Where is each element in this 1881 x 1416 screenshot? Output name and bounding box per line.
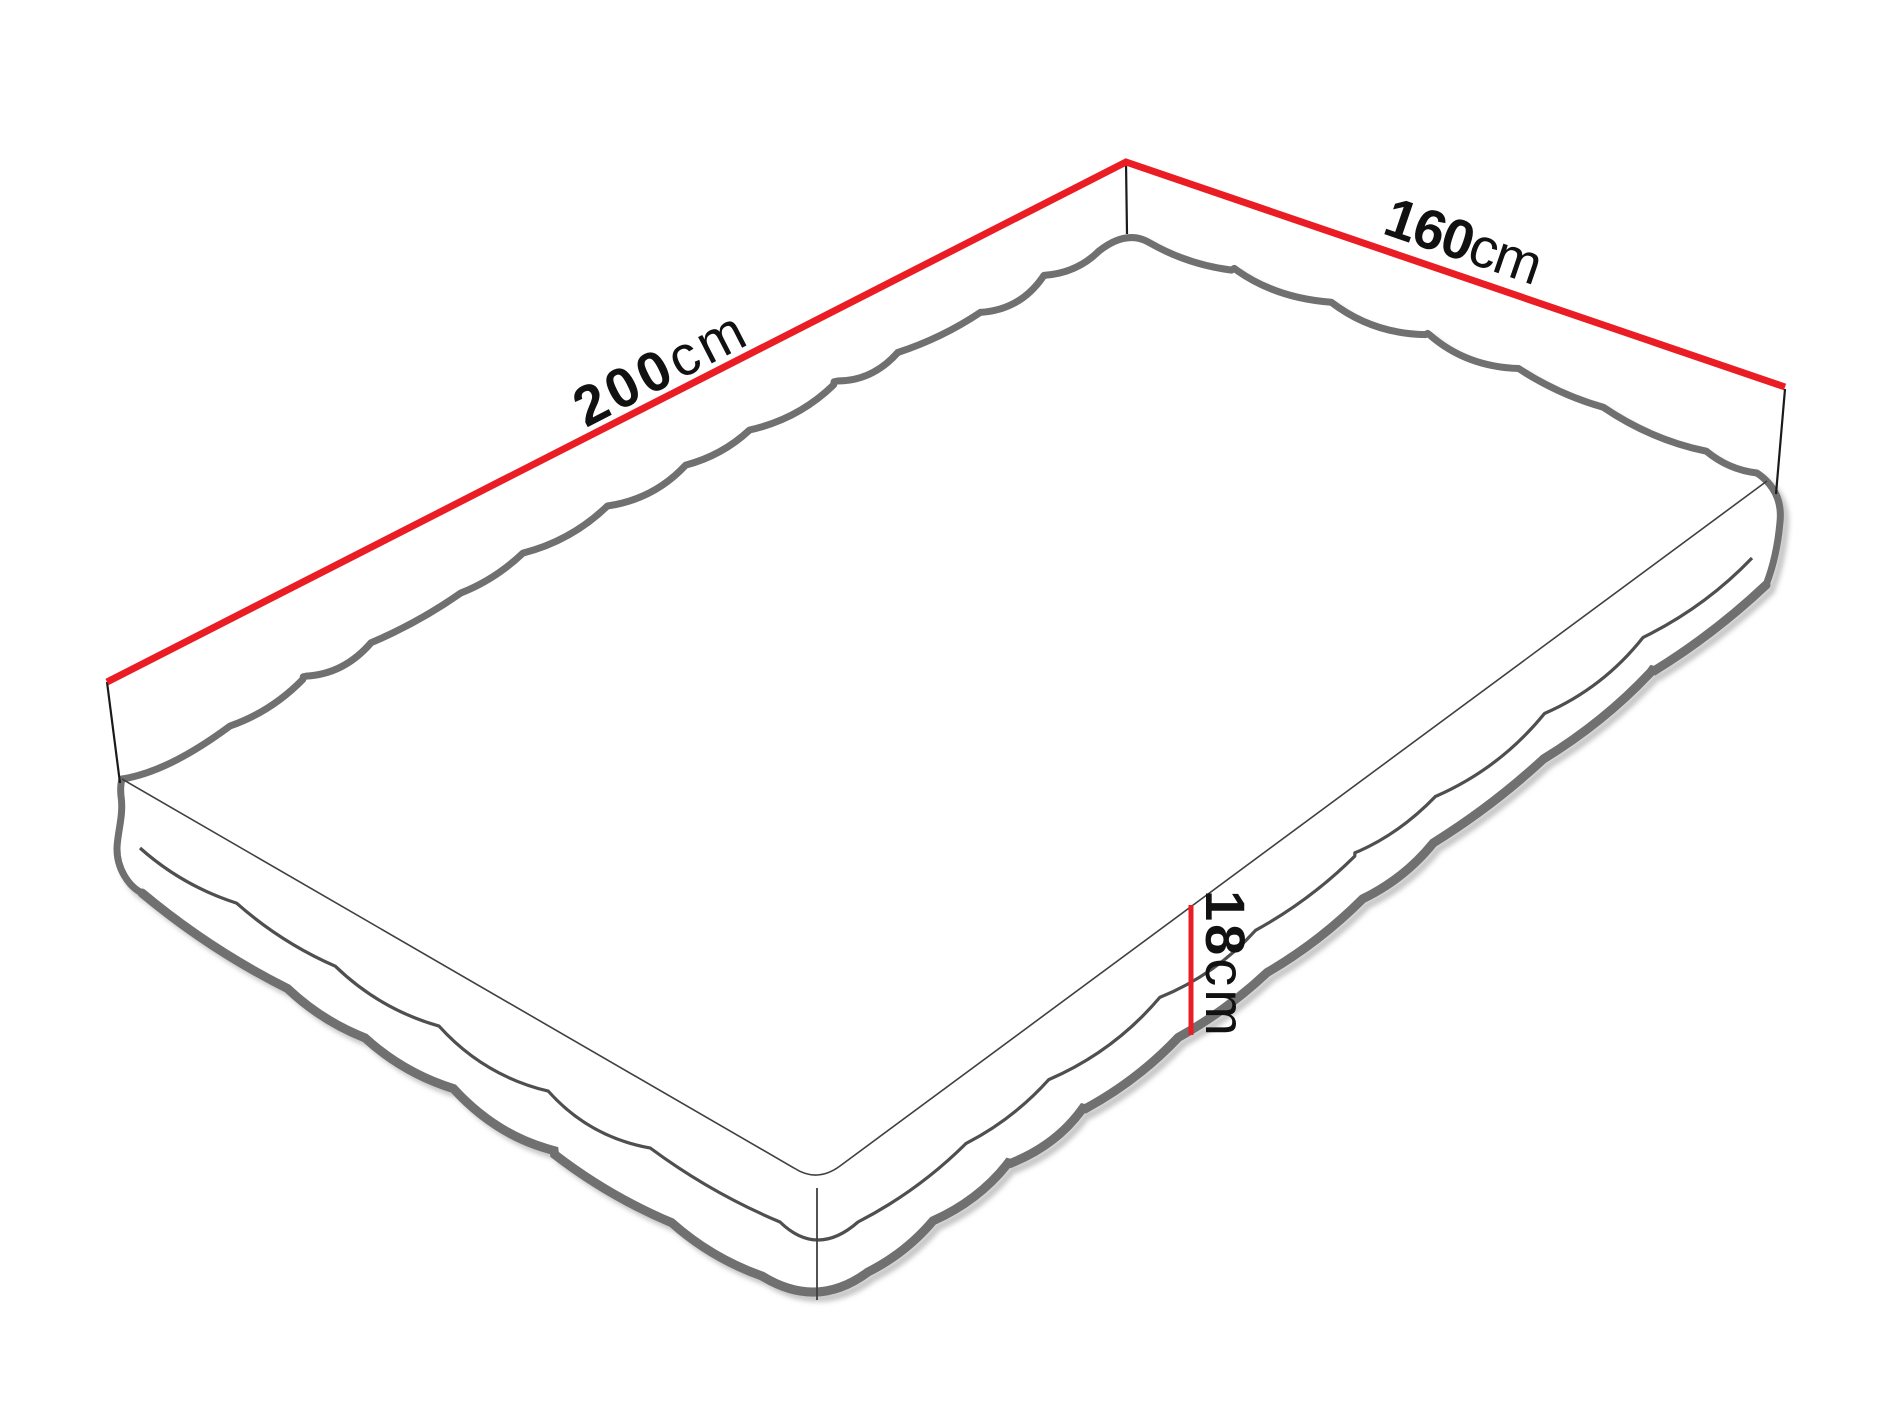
- svg-text:18cm: 18cm: [1194, 890, 1257, 1039]
